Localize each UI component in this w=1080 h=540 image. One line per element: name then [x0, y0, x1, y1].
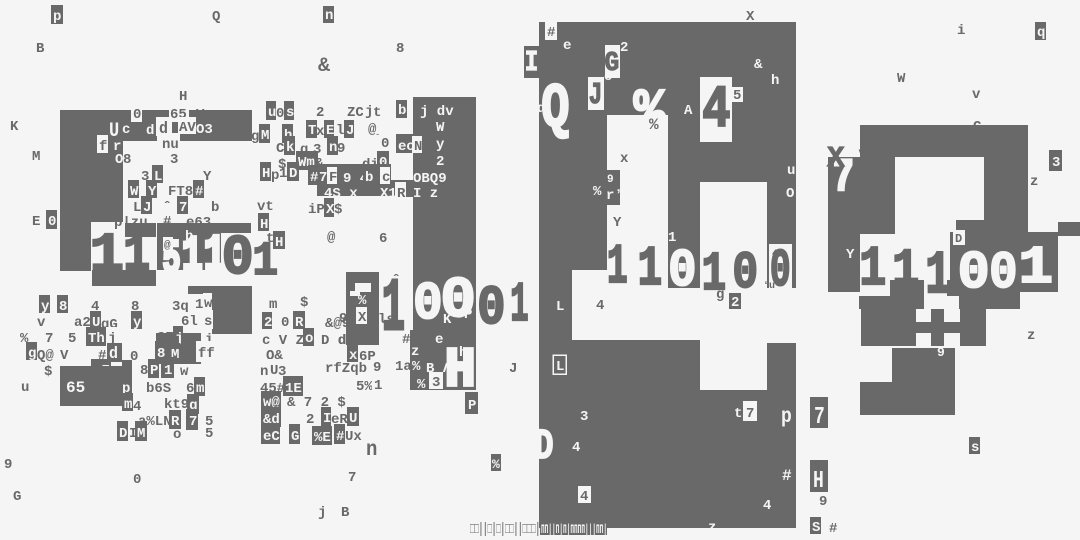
svg-text:0: 0 — [48, 214, 56, 230]
svg-text:0: 0 — [133, 107, 141, 123]
svg-text:0: 0 — [276, 106, 284, 122]
svg-text:f: f — [99, 139, 107, 155]
svg-text:1: 1 — [925, 241, 951, 310]
svg-text:9: 9 — [937, 345, 945, 360]
svg-text:X1: X1 — [380, 186, 397, 202]
svg-text:M: M — [137, 426, 145, 442]
svg-text:#: # — [829, 521, 837, 537]
svg-text:8: 8 — [396, 41, 404, 57]
svg-text:x: x — [316, 124, 325, 140]
svg-text:1: 1 — [279, 166, 287, 182]
svg-text:0: 0 — [381, 136, 389, 152]
svg-text:x: x — [620, 151, 629, 167]
svg-text:p: p — [781, 404, 792, 429]
svg-text:o: o — [305, 331, 313, 347]
svg-text:#: # — [163, 214, 171, 230]
svg-text:o: o — [140, 265, 147, 279]
svg-text:c: c — [382, 170, 390, 186]
svg-text:g: g — [251, 129, 259, 145]
svg-text:4: 4 — [763, 498, 771, 514]
svg-text:d: d — [537, 101, 545, 117]
svg-text:u: u — [787, 163, 795, 179]
svg-text:z: z — [411, 344, 419, 360]
svg-text:nu: nu — [162, 137, 179, 153]
svg-text:3: 3 — [170, 152, 178, 168]
svg-text:4: 4 — [133, 399, 141, 415]
svg-text:V: V — [196, 107, 205, 123]
svg-text:Y: Y — [846, 247, 855, 263]
svg-text:#: # — [310, 170, 318, 186]
svg-text:m: m — [124, 397, 132, 413]
svg-text:1: 1 — [195, 297, 203, 313]
svg-text:y: y — [133, 315, 142, 331]
svg-text:8: 8 — [123, 152, 131, 168]
svg-text:#: # — [336, 429, 344, 445]
svg-text:F: F — [329, 170, 337, 186]
svg-text:0: 0 — [133, 472, 141, 488]
svg-text:D: D — [289, 166, 297, 182]
svg-text:7: 7 — [348, 470, 356, 486]
svg-text:S: S — [812, 520, 820, 536]
svg-text:Ux: Ux — [345, 429, 362, 445]
svg-text:$: $ — [44, 364, 52, 380]
svg-text:8: 8 — [140, 363, 148, 379]
svg-text:H: H — [262, 166, 270, 182]
svg-text:2: 2 — [436, 154, 444, 170]
svg-text:t: t — [266, 231, 274, 247]
svg-text:vt: vt — [257, 199, 274, 215]
svg-text:P: P — [464, 307, 472, 323]
svg-text:K: K — [443, 312, 452, 328]
svg-text:3: 3 — [580, 409, 588, 425]
svg-text:%: % — [358, 293, 367, 309]
svg-text:n: n — [325, 8, 333, 24]
svg-text:1: 1 — [374, 378, 382, 394]
svg-text:1: 1 — [510, 273, 528, 338]
svg-text:r: r — [956, 248, 964, 264]
svg-text:1: 1 — [892, 241, 919, 300]
svg-text:ZC: ZC — [347, 105, 364, 121]
svg-text:c: c — [604, 69, 612, 85]
svg-text:N: N — [414, 139, 422, 155]
svg-text:t: t — [734, 406, 742, 422]
svg-text:W: W — [897, 71, 906, 87]
svg-text:i: i — [957, 23, 965, 39]
svg-text:1: 1 — [164, 363, 172, 379]
svg-text:0: 0 — [668, 242, 696, 302]
svg-text:@: @ — [164, 240, 171, 252]
svg-text:J: J — [143, 200, 151, 216]
svg-text:7: 7 — [746, 406, 754, 422]
svg-text:s: s — [971, 440, 979, 456]
svg-text:Y: Y — [203, 169, 212, 185]
svg-text:L: L — [133, 200, 141, 216]
svg-text:b: b — [211, 200, 219, 216]
svg-text:%: % — [417, 377, 426, 393]
svg-text:k: k — [286, 140, 294, 156]
svg-text:5: 5 — [205, 426, 213, 442]
svg-text:&: & — [754, 57, 763, 73]
svg-text:c V Z: c V Z — [262, 333, 304, 349]
svg-text:1: 1 — [607, 235, 628, 299]
svg-text:p: p — [53, 9, 61, 25]
svg-text:0: 0 — [222, 228, 254, 291]
svg-text:OBQ9: OBQ9 — [413, 171, 447, 187]
svg-text:7: 7 — [319, 170, 327, 186]
svg-text:2: 2 — [731, 295, 739, 311]
svg-text:h: h — [771, 73, 779, 89]
svg-text:u: u — [21, 380, 29, 396]
svg-text:& 7 2 $: & 7 2 $ — [287, 395, 346, 411]
svg-text:ʻu: ʻu — [763, 280, 775, 292]
svg-text:6: 6 — [379, 231, 387, 247]
svg-text:Th: Th — [88, 331, 105, 347]
svg-text:b: b — [185, 229, 193, 245]
svg-text:A: A — [684, 103, 693, 119]
svg-text:&@9: &@9 — [325, 316, 350, 332]
svg-text:v: v — [972, 87, 981, 103]
svg-text:R: R — [397, 186, 406, 202]
svg-text:I: I — [525, 47, 538, 79]
svg-text:5: 5 — [733, 88, 741, 104]
svg-text:$: $ — [300, 295, 308, 311]
svg-text:K: K — [10, 119, 19, 135]
svg-text:%E: %E — [314, 430, 331, 446]
svg-text:ff: ff — [198, 346, 215, 362]
svg-text:H: H — [179, 89, 187, 105]
svg-text:b: b — [398, 103, 406, 119]
svg-text:1a: 1a — [395, 359, 412, 375]
svg-text:B: B — [341, 505, 350, 521]
svg-text:7: 7 — [45, 331, 53, 347]
svg-text:4: 4 — [596, 298, 604, 314]
svg-text:J: J — [589, 79, 602, 113]
svg-text:0: 0 — [281, 315, 289, 331]
svg-text:D: D — [534, 423, 554, 471]
svg-text:d: d — [146, 123, 154, 139]
svg-text:y: y — [436, 137, 445, 153]
svg-text:7: 7 — [189, 414, 197, 430]
svg-text:6l: 6l — [181, 314, 198, 330]
svg-text:2: 2 — [264, 315, 272, 331]
svg-text:7: 7 — [179, 200, 187, 216]
svg-text:B: B — [36, 41, 45, 57]
svg-text:t: t — [373, 105, 381, 121]
svg-text:9: 9 — [4, 457, 12, 473]
svg-text:d..: d.. — [338, 333, 363, 349]
svg-text:W: W — [130, 184, 139, 200]
svg-text:%: % — [593, 184, 602, 200]
svg-text:rʼ: rʼ — [606, 188, 623, 204]
svg-text:eC: eC — [263, 429, 280, 445]
svg-text:w: w — [204, 296, 213, 312]
svg-text:C: C — [276, 141, 285, 157]
svg-text:9: 9 — [819, 494, 827, 510]
svg-text:o: o — [173, 427, 181, 443]
svg-text:w: w — [180, 364, 189, 380]
svg-text:v: v — [37, 315, 46, 331]
svg-text:2: 2 — [620, 40, 628, 56]
svg-text:2: 2 — [316, 105, 324, 121]
svg-text:Y: Y — [613, 215, 622, 231]
svg-text:s: s — [286, 105, 294, 121]
svg-text:j: j — [318, 505, 326, 521]
svg-text:g: g — [28, 346, 36, 362]
svg-text:J: J — [509, 361, 517, 377]
svg-text:U: U — [349, 411, 357, 427]
svg-text:I z: I z — [413, 186, 438, 202]
svg-text:M: M — [32, 149, 40, 165]
svg-text:G: G — [291, 429, 299, 445]
svg-text:D: D — [119, 426, 127, 442]
svg-text:%: % — [412, 359, 421, 375]
svg-text:1: 1 — [90, 224, 124, 286]
svg-text:G: G — [13, 489, 21, 505]
svg-text:g: g — [716, 287, 724, 303]
svg-text:#: # — [402, 332, 410, 348]
svg-text:X: X — [358, 310, 367, 326]
svg-text:s: s — [204, 314, 212, 330]
svg-text:%: % — [649, 116, 659, 134]
svg-text:1: 1 — [1019, 238, 1053, 299]
svg-text:65: 65 — [66, 379, 85, 397]
svg-text:e: e — [563, 38, 571, 54]
svg-text:0: 0 — [413, 274, 442, 334]
svg-text:n: n — [366, 437, 377, 461]
svg-text:4: 4 — [147, 108, 155, 124]
svg-text:4: 4 — [580, 489, 588, 505]
svg-text:b: b — [365, 170, 373, 186]
svg-text:2: 2 — [306, 412, 314, 428]
svg-text:e: e — [435, 332, 443, 348]
svg-text:H: H — [813, 468, 824, 495]
svg-text:C: C — [973, 119, 982, 135]
svg-text:1: 1 — [859, 239, 886, 302]
svg-text:R: R — [295, 315, 304, 331]
svg-text:z: z — [1027, 328, 1035, 344]
svg-text:n: n — [260, 364, 268, 380]
svg-text:h: h — [459, 345, 467, 361]
svg-text:@: @ — [327, 230, 336, 246]
svg-text:L: L — [556, 299, 564, 315]
svg-text:3: 3 — [1052, 155, 1060, 171]
svg-text:ls: ls — [378, 312, 395, 328]
svg-text:#: # — [782, 467, 792, 485]
svg-text:9: 9 — [337, 141, 345, 157]
svg-text:J: J — [346, 123, 354, 139]
svg-text:z: z — [1030, 174, 1038, 190]
svg-text:7: 7 — [814, 404, 825, 431]
svg-text:y: y — [41, 299, 50, 315]
svg-text:D: D — [955, 232, 962, 246]
svg-text:$: $ — [334, 202, 342, 218]
svg-text:P: P — [468, 398, 476, 414]
svg-text:c: c — [122, 122, 130, 138]
svg-text:6P: 6P — [359, 349, 376, 365]
svg-text:#: # — [547, 25, 555, 41]
svg-text:Q@: Q@ — [37, 348, 54, 364]
svg-text:9: 9 — [607, 174, 614, 186]
svg-text:5: 5 — [68, 331, 76, 347]
svg-text:#: # — [195, 184, 203, 200]
svg-text:8: 8 — [59, 299, 67, 315]
svg-text:V: V — [859, 145, 875, 175]
svg-text:x: x — [349, 348, 358, 364]
svg-text:4: 4 — [772, 249, 778, 260]
svg-text:X: X — [827, 142, 845, 175]
svg-text:□□||□|□|□□||□□□|: □□||□|□|□□||□□□| — [470, 521, 540, 538]
svg-text:q: q — [1037, 25, 1045, 41]
svg-text:O: O — [786, 186, 794, 202]
svg-text:E: E — [32, 214, 40, 230]
svg-text:j dv: j dv — [420, 104, 454, 120]
svg-text:0: 0 — [477, 279, 505, 340]
svg-text:iP: iP — [308, 202, 325, 218]
svg-text:3: 3 — [432, 375, 440, 391]
svg-text:b6S: b6S — [146, 381, 171, 397]
svg-text:P: P — [150, 363, 158, 379]
svg-text:5%: 5% — [356, 379, 373, 395]
svg-text:0: 0 — [989, 244, 1017, 303]
svg-text:W: W — [436, 120, 445, 136]
svg-text:z: z — [708, 520, 716, 536]
svg-text:AV: AV — [179, 120, 196, 136]
svg-text:4: 4 — [572, 440, 580, 456]
svg-text:X: X — [746, 9, 755, 25]
svg-text:O3: O3 — [196, 122, 213, 138]
svg-text:%: % — [492, 457, 500, 472]
svg-text:1: 1 — [638, 237, 663, 301]
svg-text:m: m — [269, 297, 277, 313]
svg-text:L: L — [556, 359, 564, 375]
svg-text:Q: Q — [541, 74, 569, 145]
svg-text:&: & — [318, 55, 330, 78]
svg-text:Q: Q — [212, 9, 220, 25]
svg-text:4: 4 — [702, 78, 730, 144]
svg-text:V: V — [60, 348, 69, 364]
svg-text:M: M — [261, 128, 269, 144]
svg-text:ПП||П|П|ПППП|||ПП|: ПП||П|П|ПППП|||ПП| — [541, 522, 607, 537]
